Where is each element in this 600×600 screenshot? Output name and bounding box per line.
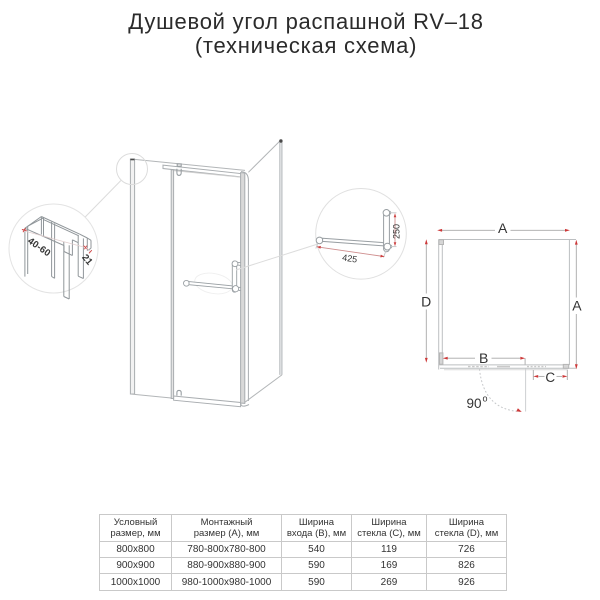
svg-text:B: B (479, 350, 488, 366)
svg-text:250: 250 (392, 224, 402, 239)
svg-text:A: A (572, 298, 582, 314)
svg-text:D: D (421, 293, 431, 309)
svg-text:A: A (498, 220, 508, 236)
svg-text:90: 90 (466, 396, 481, 411)
svg-text:C: C (545, 370, 555, 385)
svg-text:o: o (482, 394, 487, 404)
